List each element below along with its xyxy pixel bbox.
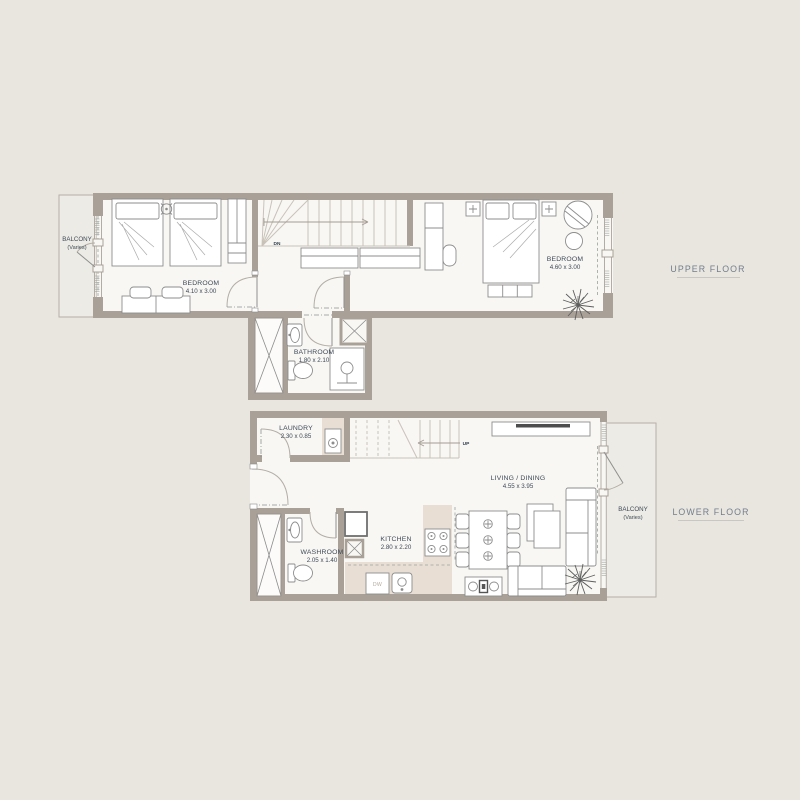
washroom-label: WASHROOM — [301, 549, 344, 556]
kitchen-closet-icon — [345, 512, 367, 536]
living-dims: 4.55 x 3.95 — [503, 483, 534, 490]
bedroom1-label: BEDROOM — [183, 280, 220, 287]
lower-balcony-note: (Varies) — [623, 515, 642, 521]
kitchen-sink-icon — [392, 573, 412, 593]
laundry-label: LAUNDRY — [279, 425, 313, 432]
floorplan-image: DN BEDROOM 4.10 x 3.00 — [0, 0, 800, 800]
lower-floor-plan: LAUNDRY 2.30 x 0.85 UP — [250, 411, 656, 601]
shaft-icon-lower — [257, 514, 281, 596]
bathroom-label: BATHROOM — [294, 349, 335, 356]
floor-captions: UPPER FLOOR LOWER FLOOR — [670, 264, 749, 521]
upper-balcony-window — [93, 216, 103, 297]
shower-icon — [330, 348, 364, 390]
bedroom1-dims: 4.10 x 3.00 — [186, 288, 217, 295]
upper-floor-caption: UPPER FLOOR — [670, 264, 745, 274]
stove-icon — [425, 529, 450, 556]
media-unit-icon — [465, 577, 502, 596]
dishwasher-label: DW — [373, 582, 382, 588]
kitchen-dims: 2.80 x 2.20 — [381, 544, 412, 551]
upper-balcony-label: BALCONY — [62, 236, 92, 243]
bathroom-dims: 1.80 x 2.10 — [299, 357, 330, 364]
wardrobe-icon — [228, 199, 246, 263]
bedroom2-dims: 4.60 x 3.00 — [550, 264, 581, 271]
bedroom2-label: BEDROOM — [547, 256, 584, 263]
bathroom-sink-icon — [287, 324, 302, 346]
living-label: LIVING / DINING — [491, 475, 546, 482]
kitchen-label: KITCHEN — [380, 536, 411, 543]
stair-up-label: UP — [463, 441, 470, 447]
lower-balcony-label: BALCONY — [618, 506, 648, 513]
floorplan-canvas: DN BEDROOM 4.10 x 3.00 — [0, 0, 800, 800]
storage-unit-icon — [301, 248, 420, 268]
upper-balcony-note: (Varies) — [67, 245, 86, 251]
upper-balcony — [59, 195, 97, 317]
tv-console-icon — [492, 422, 590, 436]
duct-box-icon — [341, 318, 368, 344]
washer-icon — [325, 429, 341, 453]
stair-dn-label: DN — [274, 241, 281, 247]
washroom-sink-icon — [287, 518, 302, 542]
duct-box-icon-lower — [346, 540, 363, 557]
laundry-dims: 2.30 x 0.85 — [281, 433, 312, 440]
shaft-icon — [255, 318, 283, 393]
washroom-dims: 2.05 x 1.40 — [307, 557, 338, 564]
washroom-toilet-icon — [288, 564, 313, 582]
coffee-table-icon — [527, 504, 560, 548]
dining-set-icon — [456, 511, 520, 569]
lower-floor-caption: LOWER FLOOR — [672, 507, 749, 517]
upper-floor-plan: DN BEDROOM 4.10 x 3.00 — [59, 193, 613, 400]
